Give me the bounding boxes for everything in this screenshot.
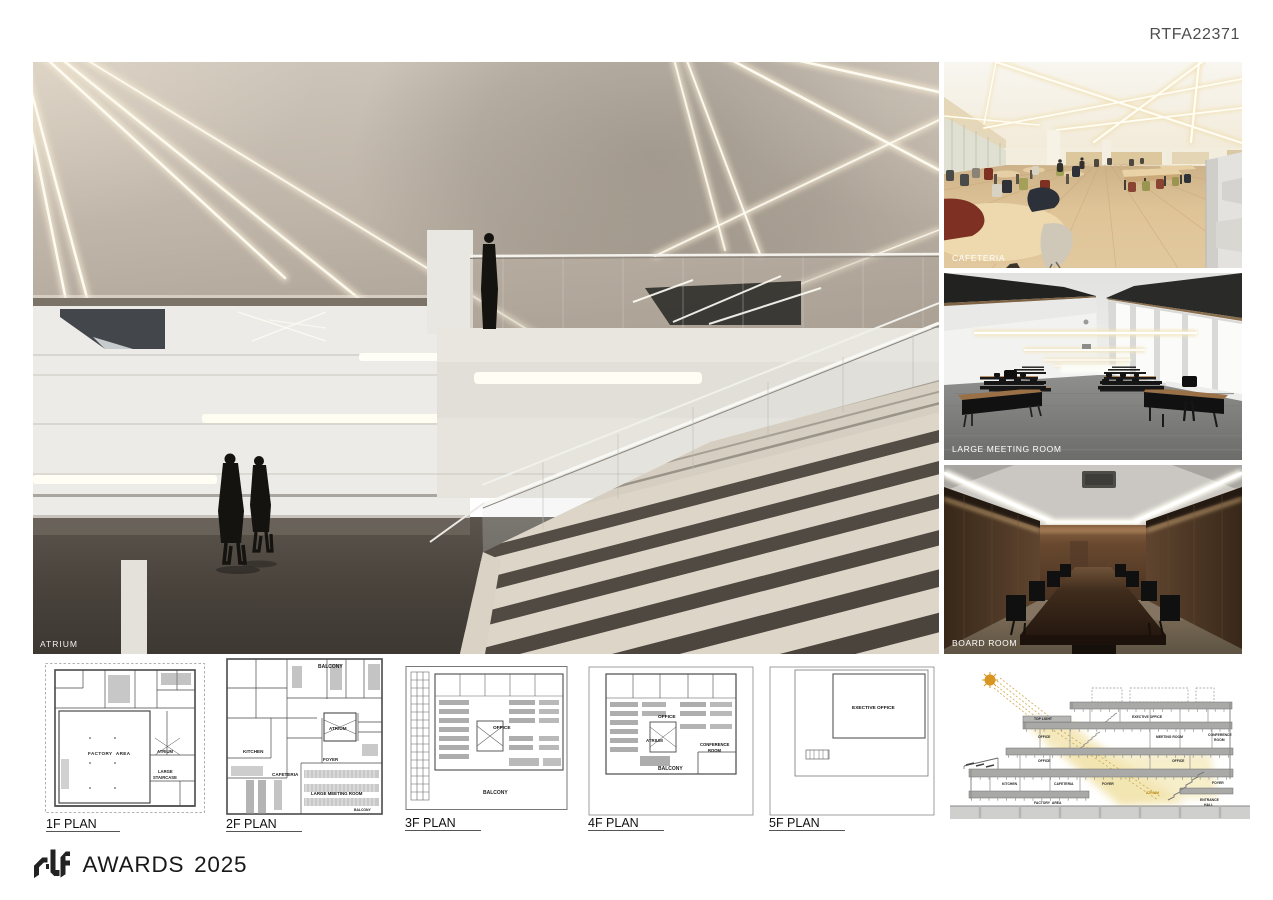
svg-text:MEETING ROOM: MEETING ROOM <box>1156 735 1183 739</box>
svg-text:ATRIUM: ATRIUM <box>40 639 78 649</box>
svg-text:FOYER: FOYER <box>1212 781 1224 785</box>
svg-text:OFFICE: OFFICE <box>1038 735 1051 739</box>
svg-text:BALCONY: BALCONY <box>658 766 683 772</box>
svg-text:LARGE MEETING ROOM: LARGE MEETING ROOM <box>952 444 1062 454</box>
svg-text:ROOM: ROOM <box>1214 738 1225 742</box>
svg-text:OFFICE: OFFICE <box>1038 759 1051 763</box>
svg-text:ATRIUM: ATRIUM <box>1146 791 1159 795</box>
svg-text:1F PLAN: 1F PLAN <box>46 817 97 831</box>
svg-text:OFFICE: OFFICE <box>658 714 676 720</box>
svg-text:CAFETERIA: CAFETERIA <box>272 772 299 777</box>
svg-text:ENTRANCE: ENTRANCE <box>1200 798 1220 802</box>
svg-text:KITCHEN: KITCHEN <box>243 749 264 754</box>
svg-text:EXECTIVE OFFICE: EXECTIVE OFFICE <box>1132 715 1163 719</box>
svg-text:OFFICE: OFFICE <box>1172 759 1185 763</box>
svg-text:TOP LIGHT: TOP LIGHT <box>1034 717 1053 721</box>
svg-text:BALCONY: BALCONY <box>318 664 343 670</box>
svg-text:BALCONY: BALCONY <box>354 808 372 812</box>
svg-text:EXECTIVE OFFICE: EXECTIVE OFFICE <box>852 705 895 711</box>
svg-text:FACTORY AREA: FACTORY AREA <box>88 751 131 756</box>
svg-text:BALCONY: BALCONY <box>483 790 508 796</box>
svg-text:FOYER: FOYER <box>1102 782 1114 786</box>
svg-text:ATRIUM: ATRIUM <box>157 749 173 754</box>
svg-text:HALL: HALL <box>1204 803 1213 807</box>
svg-text:CONFERENCE: CONFERENCE <box>700 742 730 747</box>
svg-text:ATRIUM: ATRIUM <box>329 726 347 731</box>
svg-text:ROOM: ROOM <box>708 748 722 753</box>
svg-text:KITCHEN: KITCHEN <box>1002 782 1018 786</box>
svg-text:FACTORY AREA: FACTORY AREA <box>1034 801 1062 805</box>
svg-text:LARGE: LARGE <box>158 769 173 774</box>
svg-text:4F PLAN: 4F PLAN <box>588 816 639 830</box>
svg-text:STAIRCASE: STAIRCASE <box>153 775 177 780</box>
svg-text:CONFERENCE: CONFERENCE <box>1208 733 1232 737</box>
svg-text:OFFICE: OFFICE <box>493 725 511 731</box>
svg-text:ATRIUM: ATRIUM <box>646 738 663 743</box>
svg-text:5F PLAN: 5F PLAN <box>769 816 820 830</box>
svg-text:BOARD ROOM: BOARD ROOM <box>952 638 1017 648</box>
svg-text:CAFETERIA: CAFETERIA <box>1054 782 1074 786</box>
svg-text:FOYER: FOYER <box>323 757 339 762</box>
svg-text:3F PLAN: 3F PLAN <box>405 816 456 830</box>
svg-text:CAFETERIA: CAFETERIA <box>952 253 1005 263</box>
svg-text:2F PLAN: 2F PLAN <box>226 817 277 831</box>
svg-text:LARGE MEETING ROOM: LARGE MEETING ROOM <box>311 791 363 796</box>
